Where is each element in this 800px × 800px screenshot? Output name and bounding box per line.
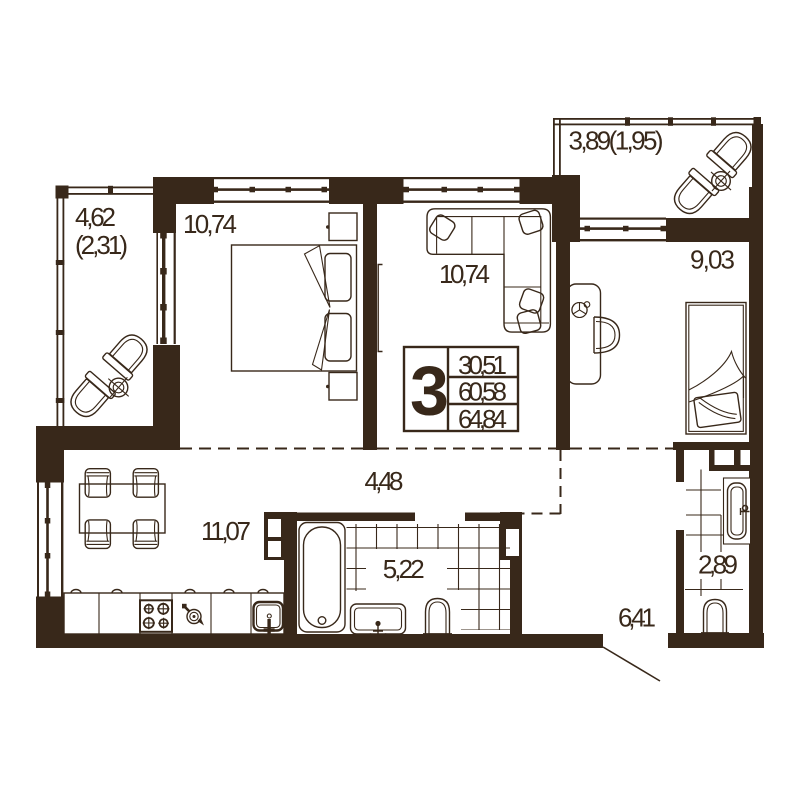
svg-text:3,89(1,95): 3,89(1,95) bbox=[569, 126, 664, 156]
svg-text:10,74: 10,74 bbox=[439, 259, 490, 289]
svg-text:3: 3 bbox=[410, 352, 449, 430]
svg-text:11,07: 11,07 bbox=[201, 516, 251, 546]
svg-text:5,22: 5,22 bbox=[383, 554, 425, 584]
svg-text:(2,31): (2,31) bbox=[75, 230, 128, 260]
svg-text:4,62: 4,62 bbox=[75, 202, 116, 232]
svg-text:30,51: 30,51 bbox=[458, 350, 507, 380]
svg-text:2,89: 2,89 bbox=[698, 550, 738, 580]
svg-text:4,48: 4,48 bbox=[365, 466, 404, 496]
svg-text:60,58: 60,58 bbox=[458, 377, 507, 407]
svg-text:10,74: 10,74 bbox=[183, 209, 237, 239]
svg-text:64,84: 64,84 bbox=[458, 404, 507, 434]
svg-text:9,03: 9,03 bbox=[690, 245, 735, 275]
svg-text:6,41: 6,41 bbox=[618, 603, 656, 633]
